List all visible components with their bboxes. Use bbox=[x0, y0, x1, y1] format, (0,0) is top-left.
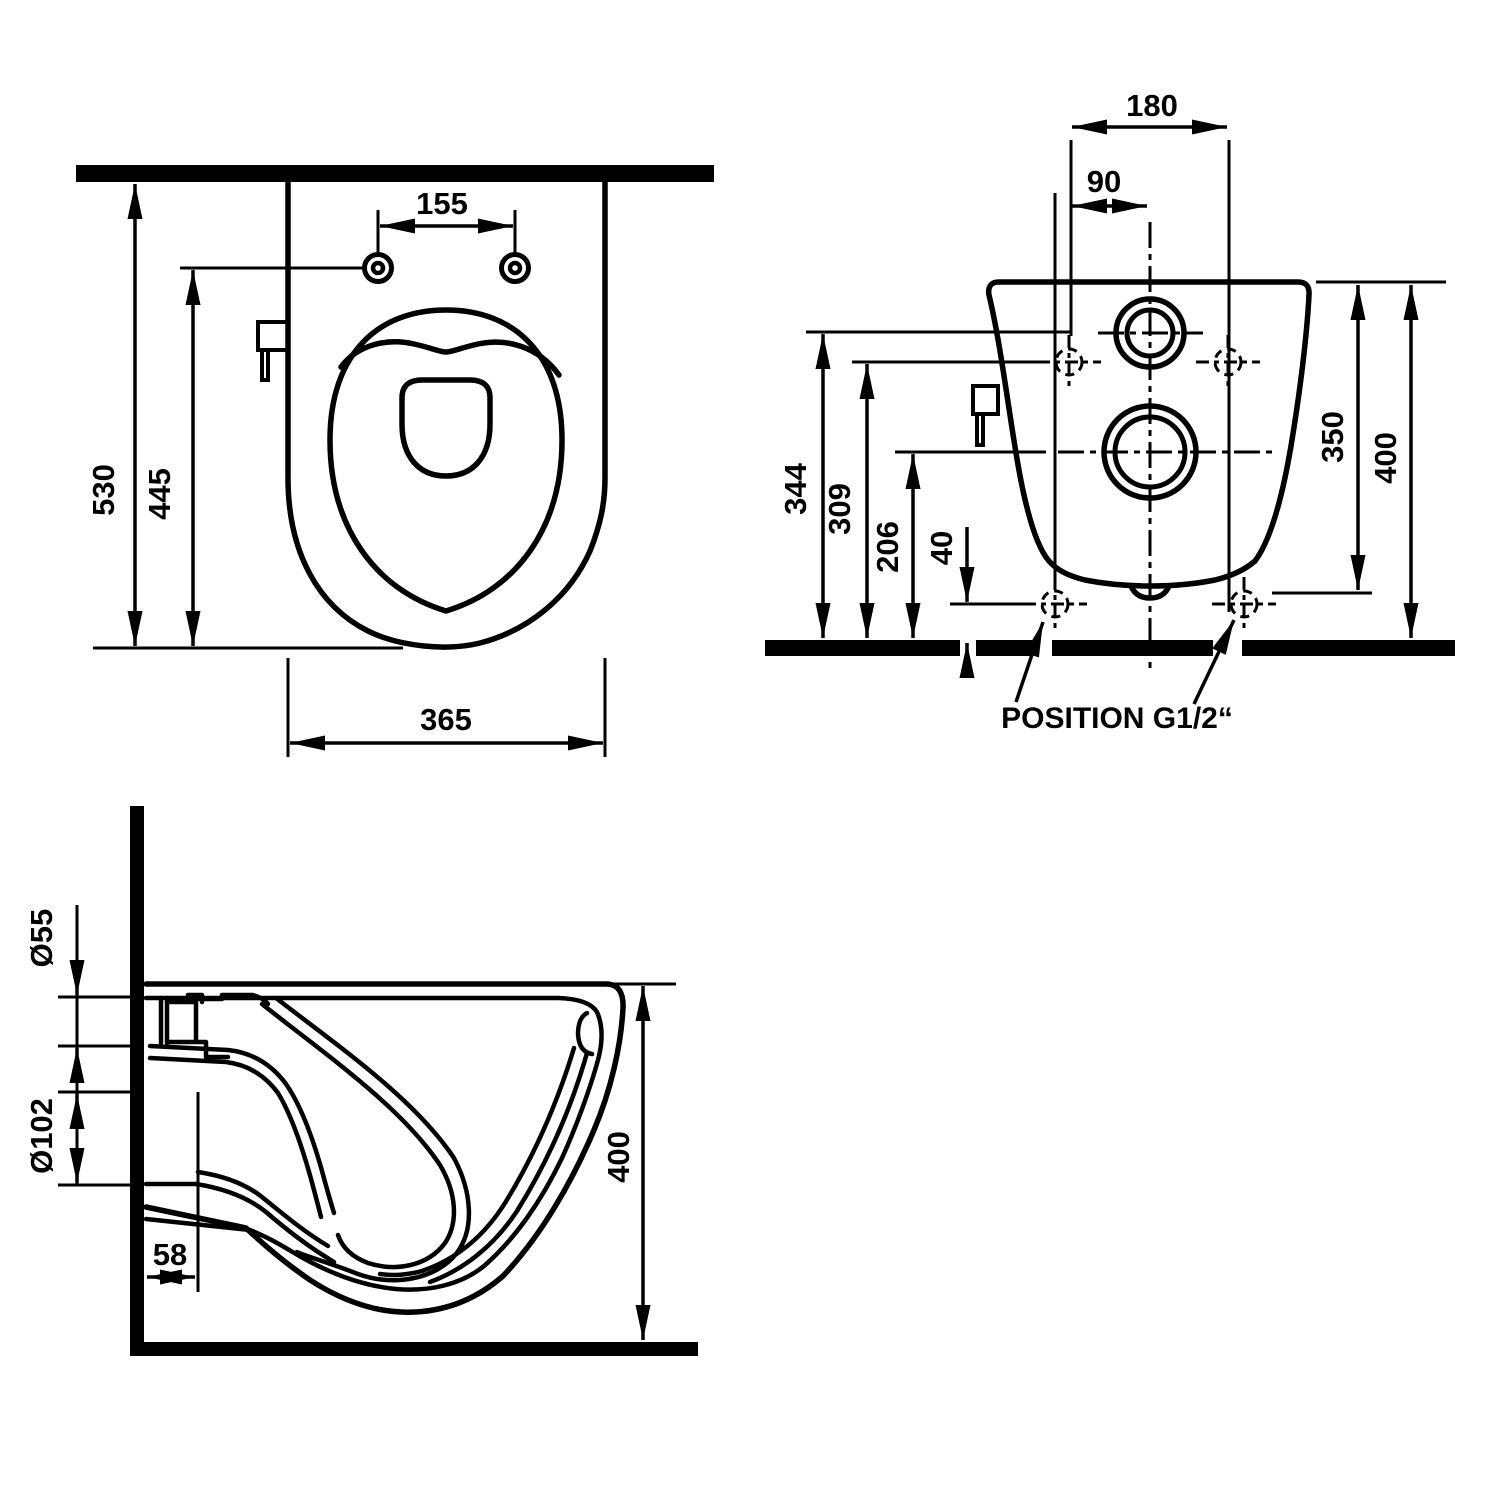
bowl-rear-wall-inner bbox=[276, 998, 469, 1280]
pointer-arrow-left bbox=[1016, 622, 1043, 702]
dim-label-206: 206 bbox=[870, 521, 905, 573]
side-view: Ø55 Ø102 58 400 bbox=[24, 806, 698, 1356]
dim-label-155: 155 bbox=[416, 186, 468, 221]
dim-label-40: 40 bbox=[924, 531, 959, 565]
floor-bar-segment bbox=[765, 640, 960, 656]
floor-bar-segment bbox=[1242, 640, 1455, 656]
shell-inner-outline bbox=[146, 998, 602, 1290]
seat-ring-outline bbox=[330, 310, 562, 611]
dim-label-344: 344 bbox=[778, 462, 813, 514]
dim-label-445: 445 bbox=[142, 468, 177, 520]
sprayer-fixture-stem bbox=[262, 350, 268, 380]
wall-bar-side-view bbox=[130, 806, 144, 1356]
floor-bar-segment bbox=[976, 640, 1032, 656]
dim-label-180: 180 bbox=[1126, 88, 1178, 123]
sprayer-fixture-body bbox=[258, 322, 288, 350]
mounting-hole-right bbox=[502, 255, 529, 282]
dim-label-inlet-diameter: Ø55 bbox=[24, 909, 59, 968]
bowl-front-wall-inner bbox=[430, 1053, 587, 1282]
sprayer-fixture-body-rear bbox=[973, 386, 998, 414]
g-half-cross-upper-left bbox=[1037, 335, 1101, 389]
toilet-dimension-drawing: 530 445 155 365 bbox=[0, 0, 1500, 1500]
floor-bar-segment bbox=[1052, 640, 1213, 656]
dim-label-530: 530 bbox=[86, 464, 121, 516]
dim-label-350: 350 bbox=[1315, 411, 1350, 463]
dim-label-309: 309 bbox=[822, 483, 857, 535]
weir-channel-top-outer bbox=[150, 1046, 334, 1213]
bowl-opening-outline bbox=[402, 380, 490, 476]
toilet-body-outline bbox=[288, 182, 605, 647]
floor-bar-side-view bbox=[130, 1342, 698, 1356]
dim-label-400-side: 400 bbox=[601, 1131, 636, 1183]
dim-label-90: 90 bbox=[1087, 164, 1121, 199]
pointer-arrow-right bbox=[1194, 620, 1234, 704]
inlet-socket-box bbox=[167, 1002, 196, 1042]
dim-label-drain-diameter: Ø102 bbox=[24, 1098, 59, 1174]
dim-label-400-rear: 400 bbox=[1368, 432, 1403, 484]
wall-bar-top-view bbox=[76, 165, 714, 182]
rear-view: 180 90 344 309 206 40 350 400 POSITION G… bbox=[765, 88, 1455, 735]
dim-label-58: 58 bbox=[153, 1237, 187, 1272]
mounting-hole-left-center bbox=[373, 263, 383, 273]
rim-channel-curl bbox=[578, 1013, 592, 1054]
seat-hinge-wave-line bbox=[341, 342, 559, 375]
top-view: 530 445 155 365 bbox=[76, 165, 714, 757]
technical-drawing-page: 530 445 155 365 bbox=[0, 0, 1500, 1500]
mounting-hole-right-center bbox=[510, 263, 520, 273]
position-annotation: POSITION G1/2“ bbox=[1001, 702, 1233, 735]
mounting-hole-left bbox=[365, 255, 392, 282]
g-half-cross-lower-right bbox=[1212, 577, 1276, 631]
sprayer-fixture-stem-rear bbox=[977, 414, 983, 445]
bowl-rear-wall-outer bbox=[262, 1004, 454, 1267]
dim-label-365: 365 bbox=[420, 702, 472, 737]
